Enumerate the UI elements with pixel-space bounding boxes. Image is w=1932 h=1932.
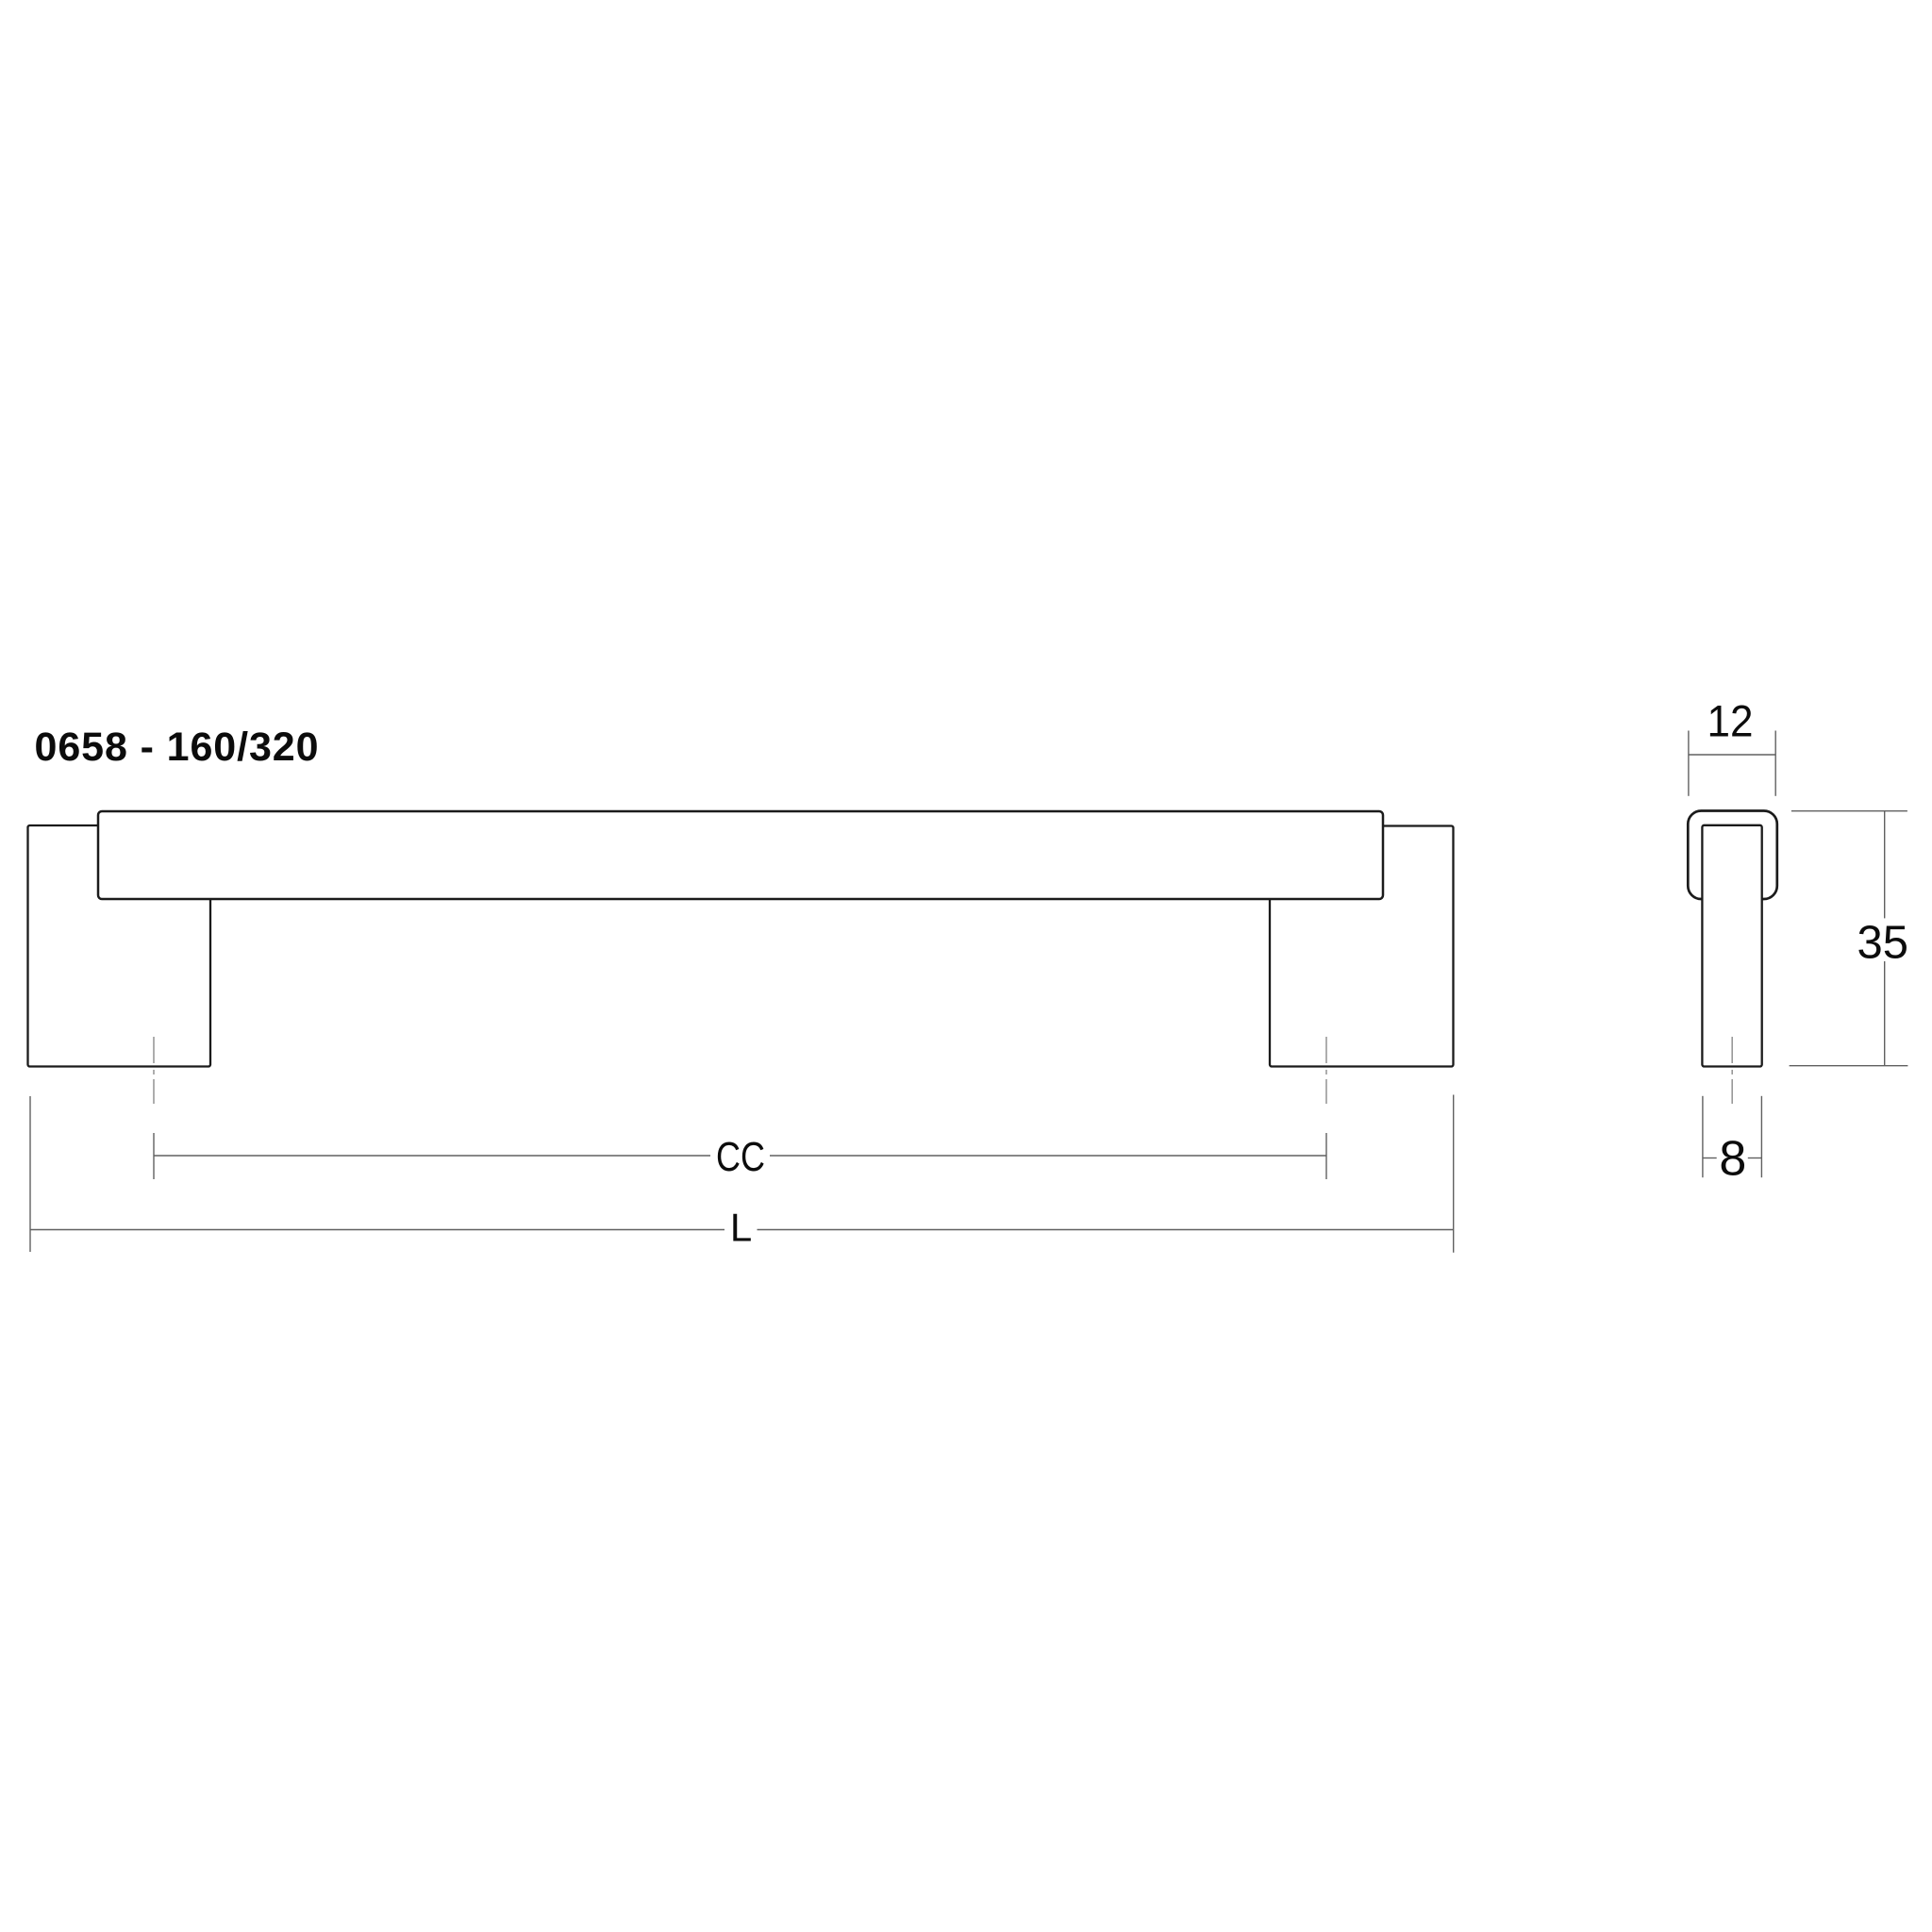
svg-text:CC: CC xyxy=(716,1134,765,1180)
svg-text:L: L xyxy=(730,1206,752,1250)
svg-text:8: 8 xyxy=(1719,1132,1746,1187)
svg-text:12: 12 xyxy=(1707,697,1754,747)
svg-text:35: 35 xyxy=(1857,917,1909,968)
svg-text:0658 - 160/320: 0658 - 160/320 xyxy=(35,724,320,770)
